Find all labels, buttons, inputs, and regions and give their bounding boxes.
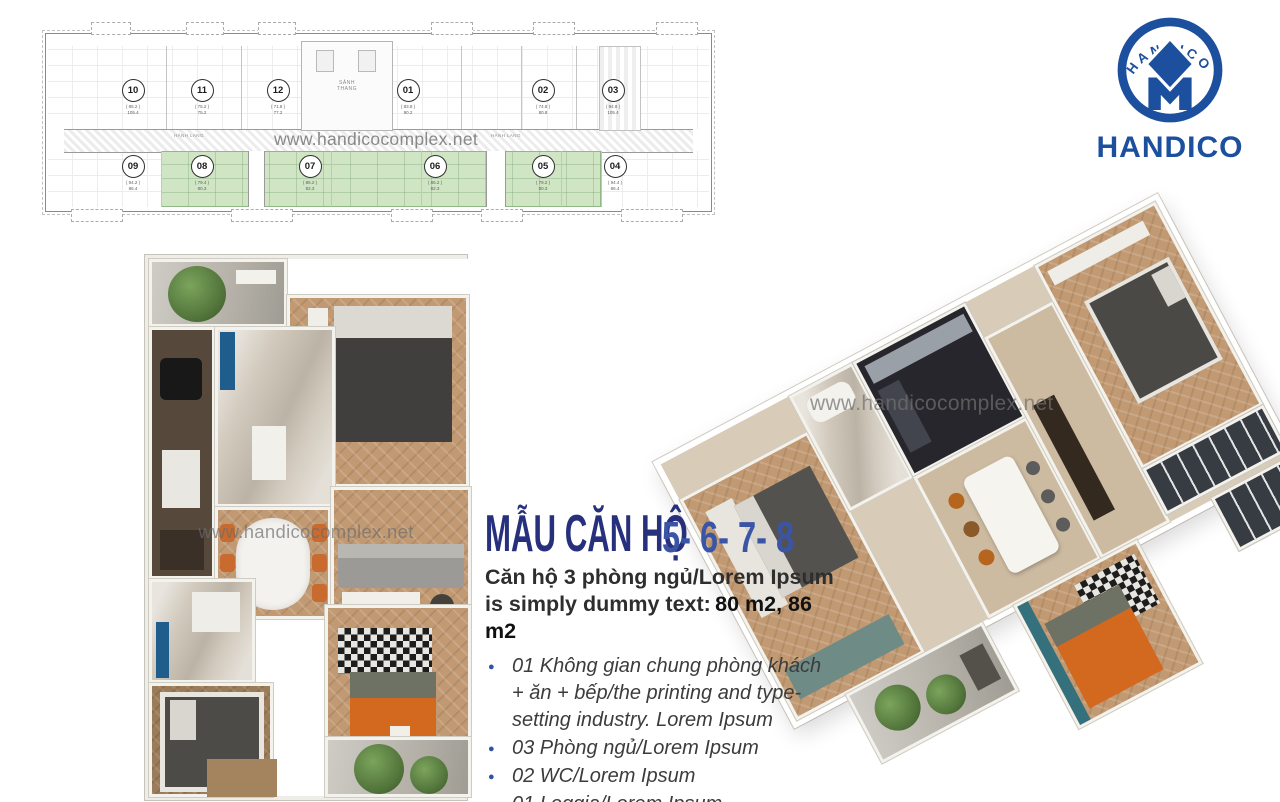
elevator xyxy=(358,50,376,72)
sofa-back xyxy=(338,544,464,558)
handico-logo: HANDICO HANDICO xyxy=(1090,16,1250,165)
person xyxy=(961,518,983,540)
balcony-tab xyxy=(533,22,575,35)
unit-marker-10: 10 ( 85.2 )105.4 xyxy=(111,79,155,115)
lounge-chair xyxy=(959,643,1001,691)
bed-pillows xyxy=(170,700,196,740)
unit-marker-04: 04 ( 94.4 )86.4 xyxy=(593,155,637,191)
watermark: www.handicocomplex.net xyxy=(196,129,556,150)
blanket xyxy=(350,672,436,698)
chair xyxy=(1039,487,1058,506)
outside-area xyxy=(287,259,471,295)
unit-marker-03: 03 ( 94.8 )105.4 xyxy=(591,79,635,115)
living-room xyxy=(331,487,471,617)
title-vietnamese: MẪU CĂN HỘ xyxy=(485,506,688,562)
balcony-tab xyxy=(431,22,473,35)
wall xyxy=(161,151,162,207)
unit-marker-05: 05 ( 79.2 )80.3 xyxy=(521,155,565,191)
kitchen-counter xyxy=(864,314,972,384)
watermark: www.handicocomplex.net xyxy=(810,392,1054,416)
loggia xyxy=(149,259,287,327)
unit-marker-11: 11 ( 75.2 )75.2 xyxy=(180,79,224,115)
plant xyxy=(168,266,226,322)
subtitle-line-2: is simply dummy text: 80 m2, 86 m2 xyxy=(485,591,835,645)
sink xyxy=(162,450,200,508)
balcony xyxy=(325,737,471,797)
elevator xyxy=(316,50,334,72)
page-title: MẪU CĂN HỘ 5- 6- 7- 8 xyxy=(485,506,835,564)
person xyxy=(946,490,968,512)
vanity xyxy=(192,592,240,632)
unit-marker-02: 02 ( 74.8 )80.8 xyxy=(521,79,565,115)
balcony-tab xyxy=(391,209,433,222)
description-block: MẪU CĂN HỘ 5- 6- 7- 8 Căn hộ 3 phòng ngủ… xyxy=(485,506,835,802)
bathroom-2 xyxy=(149,579,255,683)
light-well xyxy=(486,151,506,207)
wall xyxy=(576,46,577,129)
apartment-top-view: www.handicocomplex.net xyxy=(145,255,467,800)
balcony-tab xyxy=(656,22,698,35)
subtitle-line-1: Căn hộ 3 phòng ngủ/Lorem Ipsum xyxy=(485,564,835,591)
person xyxy=(976,547,998,569)
balcony-tab xyxy=(231,209,293,222)
feature-list: 01 Không gian chung phòng khách + ăn + b… xyxy=(485,653,835,802)
shower-glass xyxy=(156,622,169,678)
chair xyxy=(1054,515,1073,534)
feature-item: 01 Loggia/Lorem Ipsum xyxy=(485,791,835,802)
bench xyxy=(236,270,276,284)
chair xyxy=(312,554,327,572)
plant xyxy=(410,756,448,794)
unit-marker-08: 08 ( 79.4 )80.3 xyxy=(180,155,224,191)
balcony-tab xyxy=(481,209,523,222)
plant xyxy=(867,677,929,739)
light-well xyxy=(248,151,265,207)
watermark: www.handicocomplex.net xyxy=(149,521,463,543)
balcony-tab xyxy=(186,22,224,35)
wall xyxy=(241,46,242,129)
chair xyxy=(312,584,327,602)
unit-marker-09: 09 ( 94.2 )86.4 xyxy=(111,155,155,191)
nightstand xyxy=(308,308,328,326)
unit-marker-12: 12 ( 71.8 )77.2 xyxy=(256,79,300,115)
unit-marker-01: 01 ( 83.8 )90.2 xyxy=(386,79,430,115)
title-unit-numbers: 5- 6- 7- 8 xyxy=(662,514,794,562)
bed xyxy=(334,338,452,442)
feature-item: 03 Phòng ngủ/Lorem Ipsum xyxy=(485,735,835,762)
bed-pillows xyxy=(334,306,452,338)
cooktop xyxy=(160,358,202,400)
unit-marker-06: 06 ( 86.2 )82.3 xyxy=(413,155,457,191)
elevator-core: SẢNH THANG xyxy=(301,41,393,131)
balcony-tab xyxy=(71,209,123,222)
shower-glass xyxy=(220,332,235,390)
chair xyxy=(1024,459,1043,478)
feature-item: 01 Không gian chung phòng khách + ăn + b… xyxy=(485,653,835,734)
checkered-rug xyxy=(338,628,432,674)
plant xyxy=(354,744,404,794)
balcony-tab xyxy=(91,22,131,35)
handico-emblem-icon: HANDICO xyxy=(1116,16,1224,124)
chair xyxy=(220,554,235,572)
desk xyxy=(207,759,277,797)
toilet xyxy=(252,426,286,480)
unit-marker-07: 07 ( 86.2 )82.3 xyxy=(288,155,332,191)
feature-item: 02 WC/Lorem Ipsum xyxy=(485,763,835,790)
page: SẢNH THANG HÀNH LANG HÀNH LANG www.handi… xyxy=(0,0,1280,802)
dining-table xyxy=(961,454,1061,576)
core-label: SẢNH THANG xyxy=(302,80,392,92)
bathroom-1 xyxy=(215,327,335,507)
plant xyxy=(919,667,973,721)
balcony-tab xyxy=(258,22,296,35)
wall xyxy=(461,46,462,129)
wall xyxy=(166,46,167,129)
